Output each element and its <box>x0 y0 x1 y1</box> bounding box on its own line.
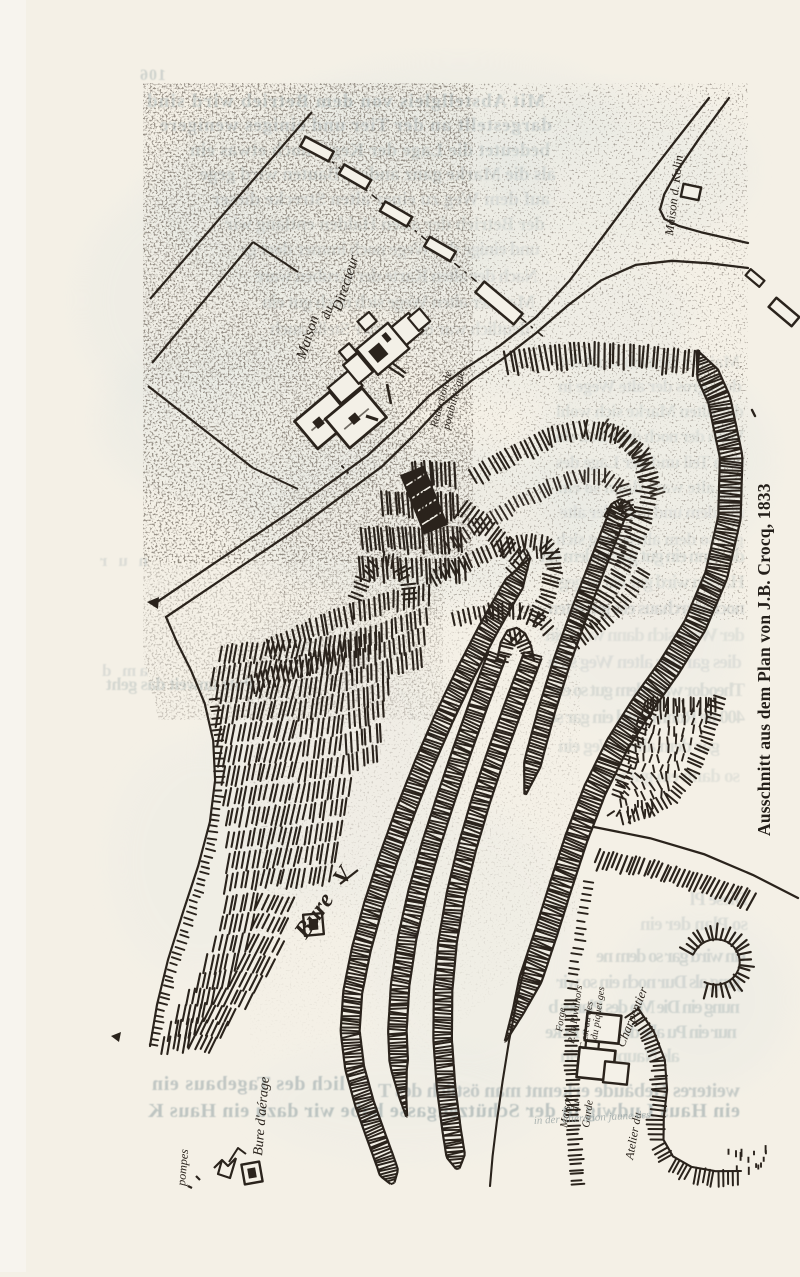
svg-text:du: du <box>569 1099 582 1112</box>
svg-text:ein wird gar so dem ne: ein wird gar so dem ne <box>596 946 746 967</box>
svg-text:so Plan der ein: so Plan der ein <box>640 914 748 935</box>
svg-text:106: 106 <box>140 67 166 84</box>
svg-text:nur: nur <box>100 551 148 570</box>
svg-text:und einige der Wege noch immer: und einige der Wege noch immer dort ge <box>240 239 540 260</box>
svg-text:dies gar der alten Weg sich: dies gar der alten Weg sich <box>548 652 742 673</box>
svg-text:ein Haus Ludwig in der Schütze: ein Haus Ludwig in der Schützengasse hab… <box>148 1100 740 1122</box>
svg-text:bedeutet die Lage der Kegel no: bedeutet die Lage der Kegel noch etwas e… <box>190 140 550 161</box>
svg-text:Mit Abstellgleis von dem Betri: Mit Abstellgleis von dem Betrieb wird si… <box>147 91 545 112</box>
svg-text:auf dem Weg zu einer alten Str: auf dem Weg zu einer alten Strecke diese… <box>211 189 550 210</box>
svg-text:weiteres Gebäude erkennt man ö: weiteres Gebäude erkennt man östlich des… <box>377 1080 740 1102</box>
svg-text:lich des Tagebaus ein: lich des Tagebaus ein <box>152 1073 345 1095</box>
svg-text:Ausschnitt aus dem Plan von J.: Ausschnitt aus dem Plan von J.B. Crocq, … <box>754 483 774 836</box>
svg-text:als die Marke ganz andere Baut: als die Marke ganz andere Bauten wird ge… <box>200 164 556 185</box>
svg-text:der Betrieb der alten Halden e: der Betrieb der alten Halden entlang wir <box>224 214 545 235</box>
svg-text:Nach der alten Karte der Grube: Nach der alten Karte der Gruben ware <box>255 266 538 287</box>
svg-text:dargestellt an der Tier und ei: dargestellt an der Tier und einiges weni… <box>160 115 552 136</box>
